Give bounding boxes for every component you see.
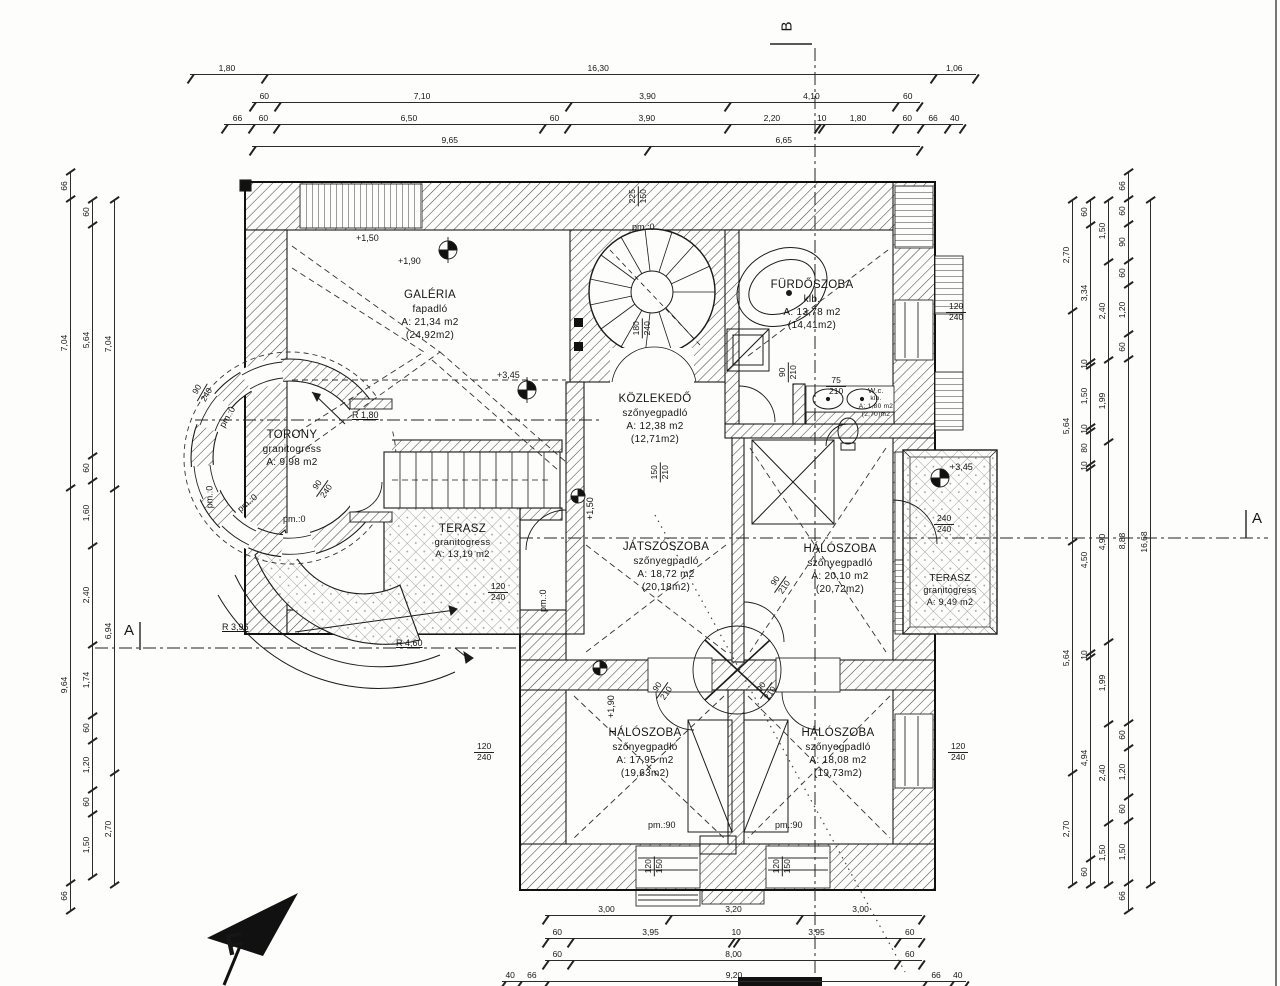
radius-label-stair-outer: R 4,60	[396, 638, 423, 648]
opening-label-win-center: 150210	[650, 462, 671, 482]
opening-label-door-bath: 90210	[778, 362, 799, 382]
dim-chain-bottom-1: 3,003,203,00	[545, 903, 922, 915]
radius-label-tower: R 1,80	[352, 410, 379, 420]
plinth-label: pm.:0	[632, 222, 655, 232]
floor-plan-sheet: 1,8016,301,06 607,103,904,1060 66606,506…	[0, 0, 1280, 986]
dim-chain-right-2: 603,34101,501080104,50104,9460	[1078, 200, 1090, 884]
level-label: +1,50	[356, 233, 379, 243]
section-marker-b: B	[779, 21, 796, 31]
opening-label-door-wc: 75210	[826, 376, 846, 397]
dim-chain-bottom-2: 603,95103,9560	[545, 926, 922, 938]
opening-label-win-terasz: 120240	[488, 582, 508, 603]
plinth-label: pm.:90	[775, 820, 803, 830]
dim-chain-left-1: 667,049,6466	[58, 172, 70, 910]
opening-label-win-bottom: 120150	[772, 856, 793, 876]
room-label-haloszoba-bl: HÁLÓSZOBAszőnyegpadló A: 17,95 m2(19,63m…	[575, 726, 715, 780]
level-label: +1,90	[398, 256, 421, 266]
room-label-terasz-right: TERASZgranitogress A: 9,49 m2	[905, 572, 995, 608]
plinth-label: pm.:0	[204, 486, 214, 509]
dim-chain-top-2: 607,103,904,1060	[252, 90, 920, 102]
room-label-haloszoba-mid: HÁLÓSZOBAszőnyegpadló A: 20,10 m2(20,72m…	[770, 542, 910, 596]
dim-chain-right-4: 666090601,20608,88601,20601,5066	[1116, 172, 1128, 910]
radius-label-stair-inner: R 3,96	[222, 622, 249, 632]
plinth-label: pm.:0	[283, 514, 306, 524]
room-label-furdoszoba: FÜRDŐSZOBAklb. A: 13,78 m2(14,41m2)	[742, 278, 882, 332]
opening-label-win-bedroom-right: 120240	[948, 742, 968, 763]
section-marker-a-left: A	[124, 622, 134, 639]
level-label: +3,45	[950, 462, 973, 472]
dim-chain-right-3: 1,502,401,994,901,992,401,50	[1096, 200, 1108, 884]
opening-label-door-stair: 180240	[632, 318, 653, 338]
level-label: +1,50	[585, 497, 595, 520]
level-label: +3,45	[497, 370, 520, 380]
plinth-label: pm.:0	[538, 589, 548, 612]
opening-label-win-stair-top: 225150	[628, 186, 649, 206]
dim-chain-right-1: 2,705,645,642,70	[1060, 200, 1072, 884]
room-label-torony: TORONYgranitogress A: 9,98 m2	[222, 428, 362, 469]
opening-label-win-bottom: 120150	[644, 856, 665, 876]
opening-label-door-terasz-right: 240240	[934, 514, 954, 535]
roof-steps-right	[935, 256, 963, 430]
room-label-kozlekedo: KÖZLEKEDŐszőnyegpadló A: 12,38 m2(12,71m…	[585, 392, 725, 446]
level-label: +1,90	[606, 695, 616, 718]
dim-chain-top-1: 1,8016,301,06	[190, 62, 976, 74]
room-label-wc: W.c.klb. A: 1,80 m2(2,70)m2	[848, 386, 904, 418]
section-marker-a-right: A	[1252, 510, 1262, 527]
dim-chain-left-2: 605,64601,602,401,74601,20601,50	[80, 200, 92, 876]
dim-chain-top-4: 9,656,65	[252, 134, 920, 146]
dim-chain-bottom-3: 608,0060	[545, 948, 922, 960]
north-arrow	[207, 893, 298, 985]
plinth-label: pm.:90	[648, 820, 676, 830]
straight-stair	[384, 452, 560, 508]
dim-chain-right-5: 16,68	[1138, 200, 1150, 884]
room-label-haloszoba-br: HÁLÓSZOBAszőnyegpadló A: 18,08 m2(19,73m…	[768, 726, 908, 780]
room-label-terasz-left: TERASZgranitogress A: 13,19 m2	[395, 522, 530, 562]
dim-chain-bottom-4: 40669,206640	[502, 969, 966, 981]
opening-label-win-bath: 120240	[946, 302, 966, 323]
room-label-galeria: GALÉRIAfapadló A: 21,34 m2(24,92m2)	[360, 288, 500, 342]
room-label-jatszoszoba: JÁTSZÓSZOBAszőnyegpadló A: 18,72 m2(20,1…	[596, 540, 736, 594]
opening-label-win-bedroom-left: 120240	[474, 742, 494, 763]
dim-chain-left-3: 7,046,942,70	[102, 200, 114, 884]
dim-chain-top-3: 66606,50603,902,20101,80606640	[224, 112, 963, 124]
